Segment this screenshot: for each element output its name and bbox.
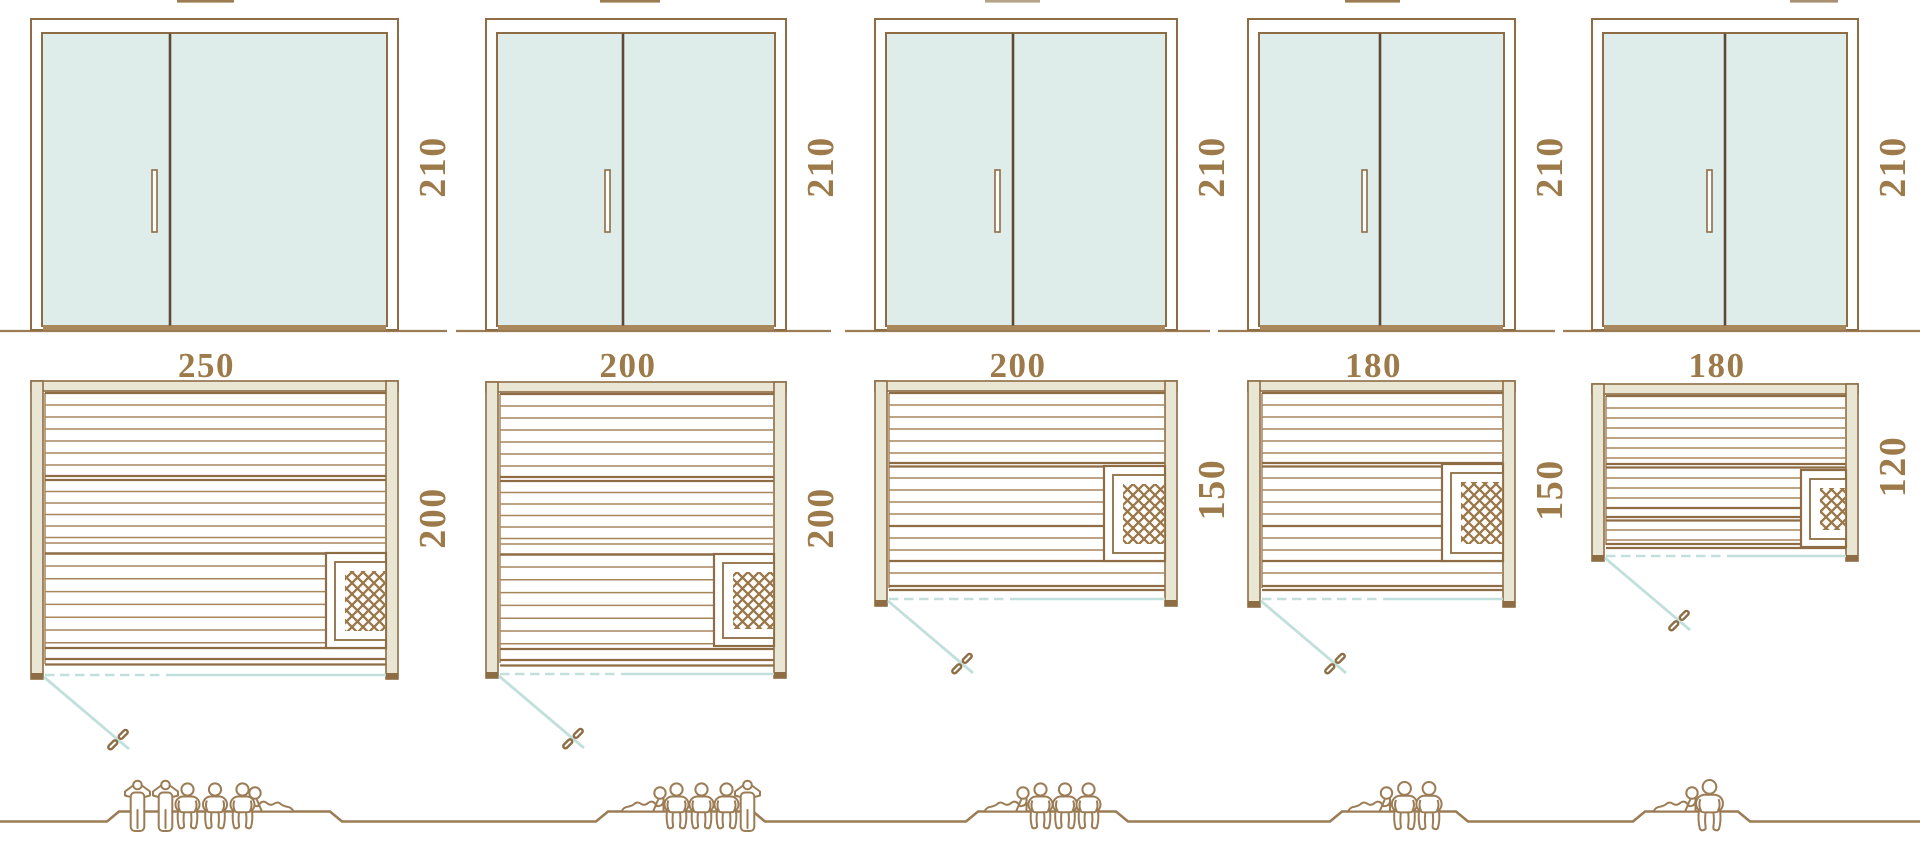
svg-text:210: 210	[1872, 136, 1914, 198]
svg-text:180: 180	[1345, 346, 1402, 385]
svg-text:210: 210	[800, 136, 842, 198]
svg-text:210: 210	[412, 136, 454, 198]
svg-text:210: 210	[1529, 136, 1571, 198]
svg-text:150: 150	[1529, 459, 1571, 521]
svg-text:200: 200	[990, 346, 1047, 385]
svg-text:250: 250	[178, 346, 235, 385]
svg-text:200: 200	[412, 487, 454, 549]
svg-text:180: 180	[1689, 346, 1746, 385]
svg-text:200: 200	[800, 487, 842, 549]
svg-text:200: 200	[600, 346, 657, 385]
svg-text:150: 150	[1191, 459, 1233, 521]
svg-text:210: 210	[1191, 136, 1233, 198]
svg-text:120: 120	[1872, 436, 1914, 498]
